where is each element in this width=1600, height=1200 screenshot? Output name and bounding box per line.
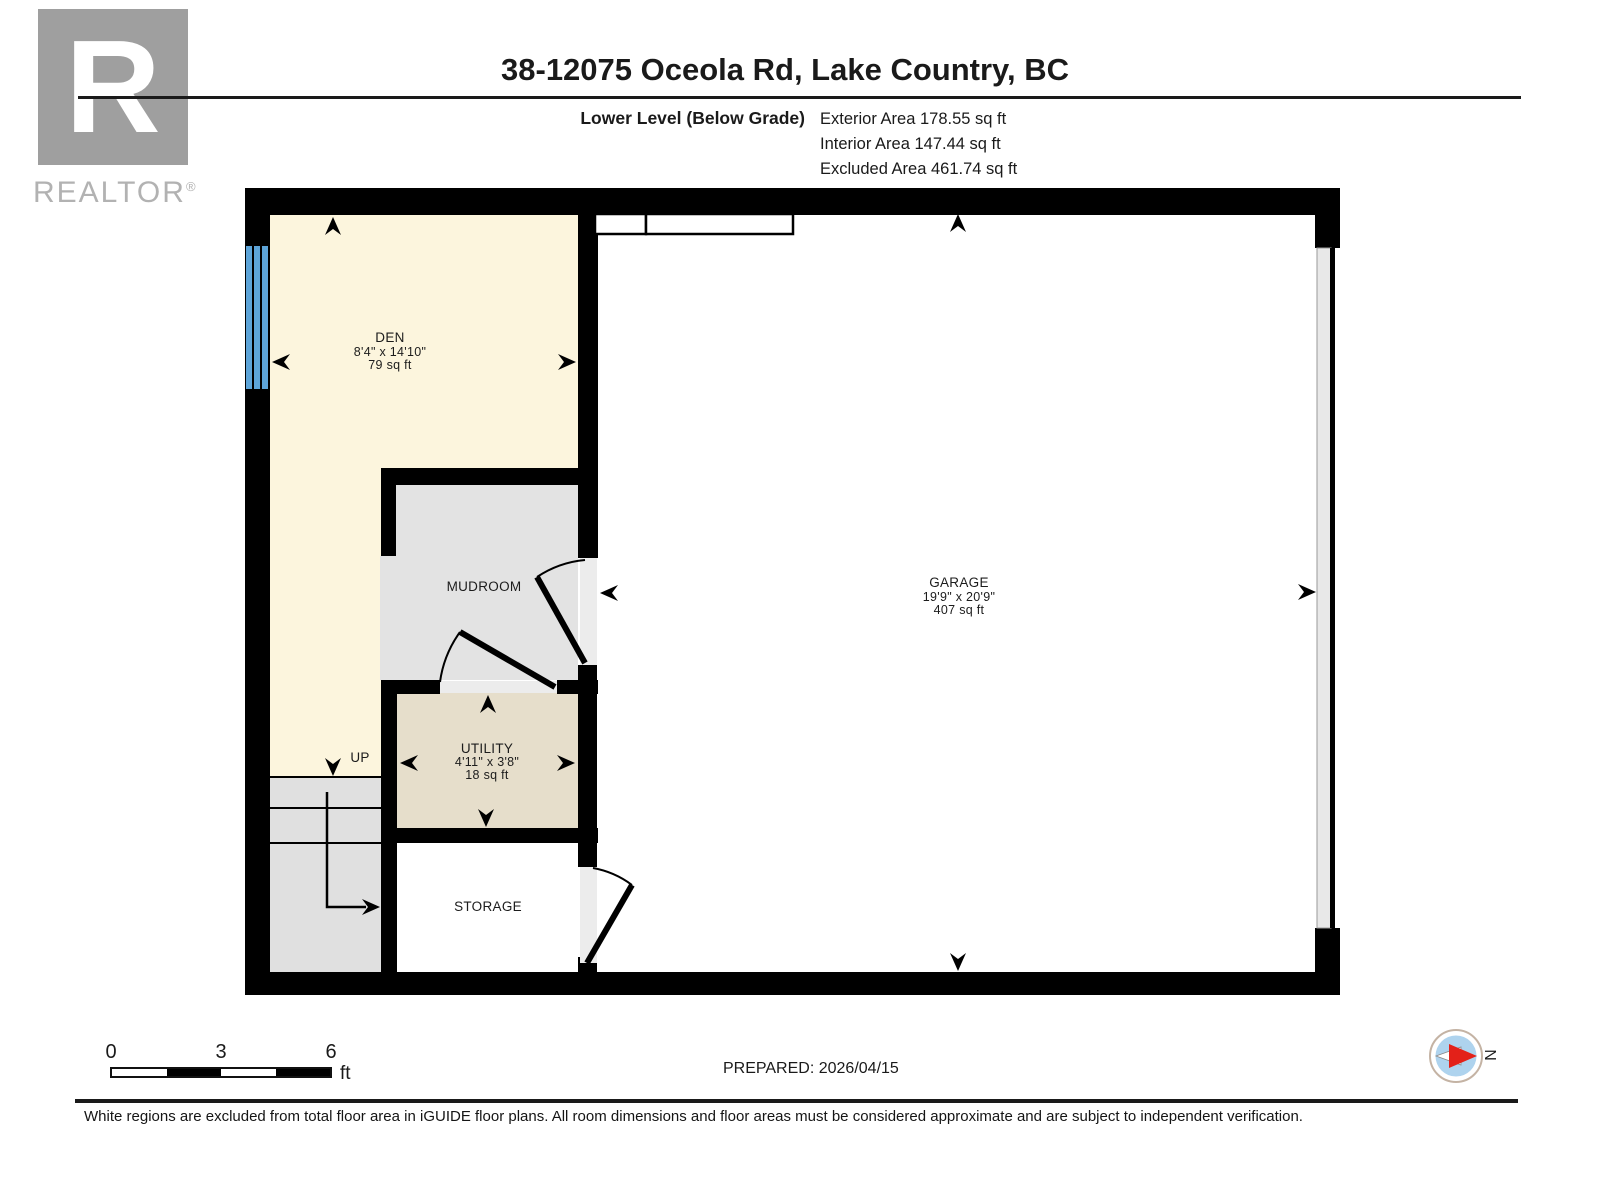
prepared-date: PREPARED: 2026/04/15 [723,1060,899,1078]
den-label: DEN [375,330,404,345]
realtor-wordmark-text: REALTOR [33,176,186,209]
area-summary: Exterior Area 178.55 sq ft Interior Area… [820,107,1017,182]
north-label: N [1481,1049,1498,1061]
scale-bar [110,1067,332,1078]
scale-segment [276,1069,331,1076]
mudroom-door-gap [580,558,597,665]
cabinet-box [595,214,646,234]
disclaimer-text: White regions are excluded from total fl… [84,1108,1303,1125]
cabinet-box [646,214,793,234]
excluded-area-line: Excluded Area 461.74 sq ft [820,157,1017,182]
scale-tick-0: 0 [99,1041,123,1064]
footer-divider [75,1099,1518,1103]
wall-den-garage [578,215,598,558]
exterior-area-line: Exterior Area 178.55 sq ft [820,107,1017,132]
scale-segment [167,1069,222,1076]
utility-dimensions: 4'11" x 3'8" [455,755,519,769]
wall-stairs-divider [381,680,397,972]
interior-area-value: 147.44 sq ft [914,135,1000,153]
window-glass [245,245,269,390]
scale-segment [112,1069,167,1076]
storage-label: STORAGE [454,899,522,914]
realtor-wordmark: REALTOR® [33,176,198,210]
wall-mudroom-left [381,468,396,556]
garage-door-icon [1317,248,1335,928]
header-divider [78,96,1521,99]
scale-unit-label: ft [340,1063,351,1085]
garage-door-track [1330,248,1335,928]
interior-area-label: Interior Area [820,135,910,153]
scale-tick-3: 3 [209,1041,233,1064]
interior-area-line: Interior Area 147.44 sq ft [820,132,1017,157]
utility-door-gap [440,681,557,693]
wall-top [245,188,1340,215]
compass-icon: N [1421,1024,1505,1090]
wall-right-bottom [1315,928,1340,995]
scale-segment [221,1069,276,1076]
registered-mark: ® [186,179,198,194]
utility-label: UTILITY [461,741,513,756]
utility-area: 18 sq ft [465,768,509,782]
garage-label: GARAGE [929,575,989,590]
den-dimensions: 8'4" x 14'10" [354,345,426,359]
excluded-area-value: 461.74 sq ft [931,160,1017,178]
window-icon [245,245,269,390]
den-area: 79 sq ft [368,358,412,372]
wall-right-top [1315,188,1340,248]
scale-tick-6: 6 [319,1041,343,1064]
garage-dimensions: 19'9" x 20'9" [923,590,995,604]
wall-utility-top-right [557,680,598,694]
stairs-up-label: UP [350,750,369,765]
exterior-area-value: 178.55 sq ft [920,110,1006,128]
mudroom-label: MUDROOM [447,579,522,594]
wall-mudroom-top [381,468,598,485]
level-label: Lower Level (Below Grade) [500,108,805,129]
page-title: 38-12075 Oceola Rd, Lake Country, BC [0,52,1570,88]
excluded-area-label: Excluded Area [820,160,926,178]
garage-area: 407 sq ft [934,603,985,617]
floorplan-page: R REALTOR® 38-12075 Oceola Rd, Lake Coun… [0,0,1600,1200]
wall-bottom [245,972,1340,995]
exterior-area-label: Exterior Area [820,110,915,128]
garage-door-panel [1317,248,1331,928]
floorplan-canvas: DEN 8'4" x 14'10" 79 sq ft MUDROOM UTILI… [245,185,1345,1000]
wall-utility-bottom [381,828,598,843]
